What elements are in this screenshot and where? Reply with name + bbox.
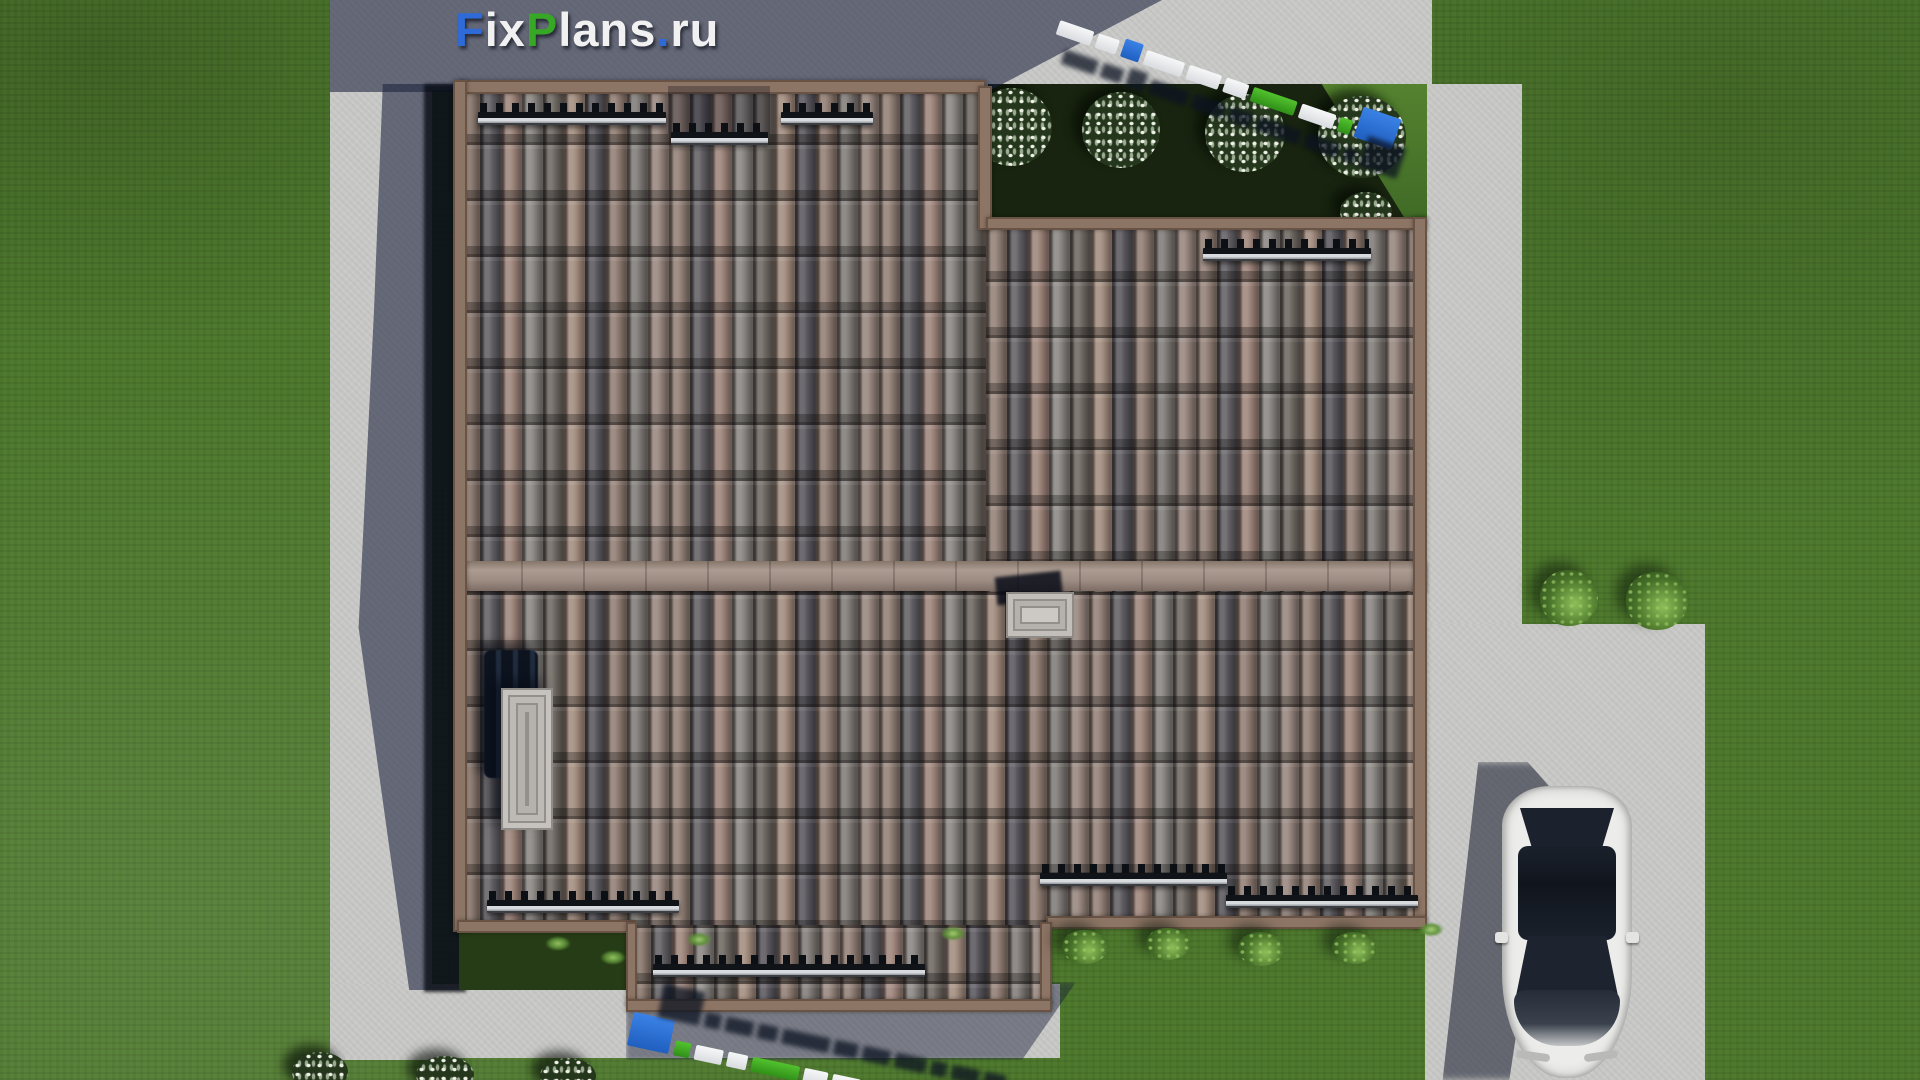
flowering-bush xyxy=(540,1058,596,1080)
roof-section-upper-right xyxy=(986,223,1427,592)
car-roof xyxy=(1518,846,1616,940)
aerial-render-scene: FixPlans.ru xyxy=(0,0,1920,1080)
snow-guard xyxy=(671,132,768,145)
flowering-bush xyxy=(988,88,1052,166)
logo-letter-group: ix xyxy=(485,3,526,56)
eave-bush xyxy=(1238,932,1284,966)
grass-tuft xyxy=(545,936,571,951)
porch-eave-right xyxy=(1040,922,1052,1006)
eave-bush xyxy=(1062,930,1108,964)
roof-eave-left xyxy=(453,80,467,932)
logo-letter-group: F xyxy=(455,3,485,56)
grass-tuft xyxy=(600,950,626,965)
snow-guard xyxy=(487,900,679,913)
logo-letter-group: lans xyxy=(558,3,656,56)
snow-guard xyxy=(1203,248,1371,261)
grass-tuft xyxy=(686,932,712,947)
roof-eave-top-right xyxy=(986,217,1427,230)
snow-guard xyxy=(1040,873,1227,886)
path-right xyxy=(1425,84,1522,632)
snow-guard xyxy=(478,112,666,125)
car-mirror-right xyxy=(1626,932,1639,943)
car xyxy=(1502,786,1632,1078)
skylight xyxy=(501,688,553,830)
logo-letter-group: ru xyxy=(670,3,719,56)
roof-eave-step-right xyxy=(978,86,992,230)
roof-eave-bottom-left xyxy=(457,920,635,933)
fixplans-watermark-logo: FixPlans.ru xyxy=(455,6,719,53)
eave-bush xyxy=(1332,932,1376,964)
car-windshield xyxy=(1516,936,1618,996)
garden-bush xyxy=(1626,572,1688,630)
logo-letter-group: . xyxy=(656,3,670,56)
roof-ridge-cap xyxy=(459,561,1427,591)
logo-letter-group: P xyxy=(526,3,558,56)
chimney-cap xyxy=(1006,592,1074,638)
garden-bush xyxy=(1540,570,1598,626)
grass-tuft xyxy=(940,926,966,941)
snow-guard xyxy=(781,112,873,125)
grass-tuft xyxy=(1418,922,1444,937)
roof-eave-bottom-right xyxy=(1046,916,1427,929)
car-mirror-left xyxy=(1495,932,1508,943)
snow-guard xyxy=(653,964,925,977)
eave-bush xyxy=(1146,928,1190,960)
roof-section-lower xyxy=(459,592,1427,925)
roof-eave-right xyxy=(1413,217,1427,929)
porch-eave-left xyxy=(626,922,637,1006)
flowering-bush xyxy=(1082,92,1160,168)
snow-guard xyxy=(1226,895,1418,908)
roof-section-upper-left xyxy=(459,86,986,592)
